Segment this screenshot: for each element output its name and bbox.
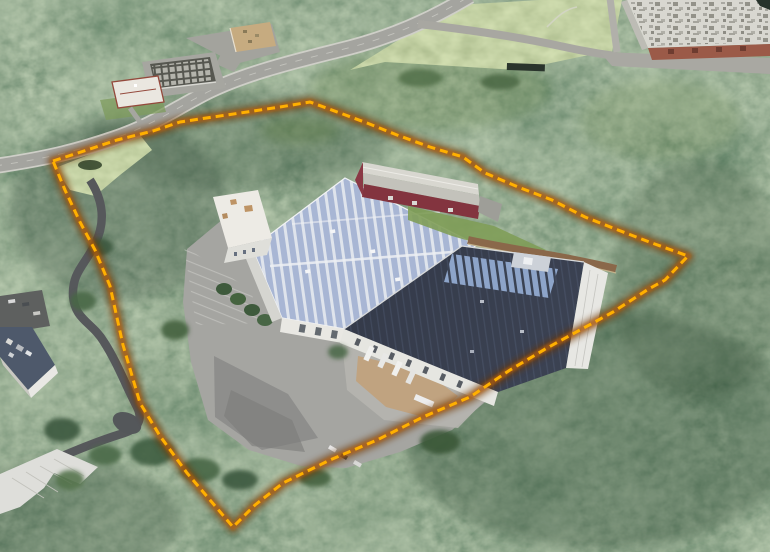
rooftop-unit bbox=[523, 257, 533, 265]
window bbox=[243, 250, 246, 254]
skylight bbox=[370, 249, 375, 253]
roof-unit bbox=[248, 40, 252, 43]
roof-rust-patch bbox=[244, 205, 253, 212]
dock-door bbox=[716, 47, 722, 52]
aerial-imagery-canvas[interactable]: Oblique aerial 3D satellite view of a wo… bbox=[0, 0, 770, 552]
parking-tree bbox=[230, 293, 246, 305]
window bbox=[252, 248, 255, 252]
dock-door bbox=[668, 49, 674, 54]
rooftop-units bbox=[629, 2, 768, 46]
skylight bbox=[395, 277, 400, 281]
dock-door-white bbox=[388, 196, 393, 200]
roof-unit bbox=[255, 34, 259, 37]
roof-vent bbox=[480, 300, 484, 303]
dock-door-white bbox=[412, 201, 417, 205]
chimney bbox=[134, 84, 137, 87]
dock-door bbox=[740, 46, 746, 51]
roof-vent bbox=[520, 330, 524, 333]
parking-tree bbox=[244, 304, 260, 316]
dock-door bbox=[692, 48, 698, 53]
bush-row bbox=[78, 160, 102, 170]
window bbox=[234, 252, 237, 256]
roof-unit bbox=[243, 30, 247, 33]
dark-wall-structure bbox=[507, 63, 545, 71]
roof-rust-patch bbox=[230, 199, 237, 205]
parking-tree bbox=[216, 283, 232, 295]
skylight bbox=[305, 269, 310, 273]
roof-rust-patch bbox=[222, 213, 228, 219]
roof-vent bbox=[470, 350, 474, 353]
white-red-trim-building bbox=[112, 76, 164, 108]
dock-door-white bbox=[448, 208, 453, 212]
satellite-view[interactable]: Oblique aerial 3D satellite view of a wo… bbox=[0, 0, 770, 552]
skylight bbox=[330, 229, 335, 233]
